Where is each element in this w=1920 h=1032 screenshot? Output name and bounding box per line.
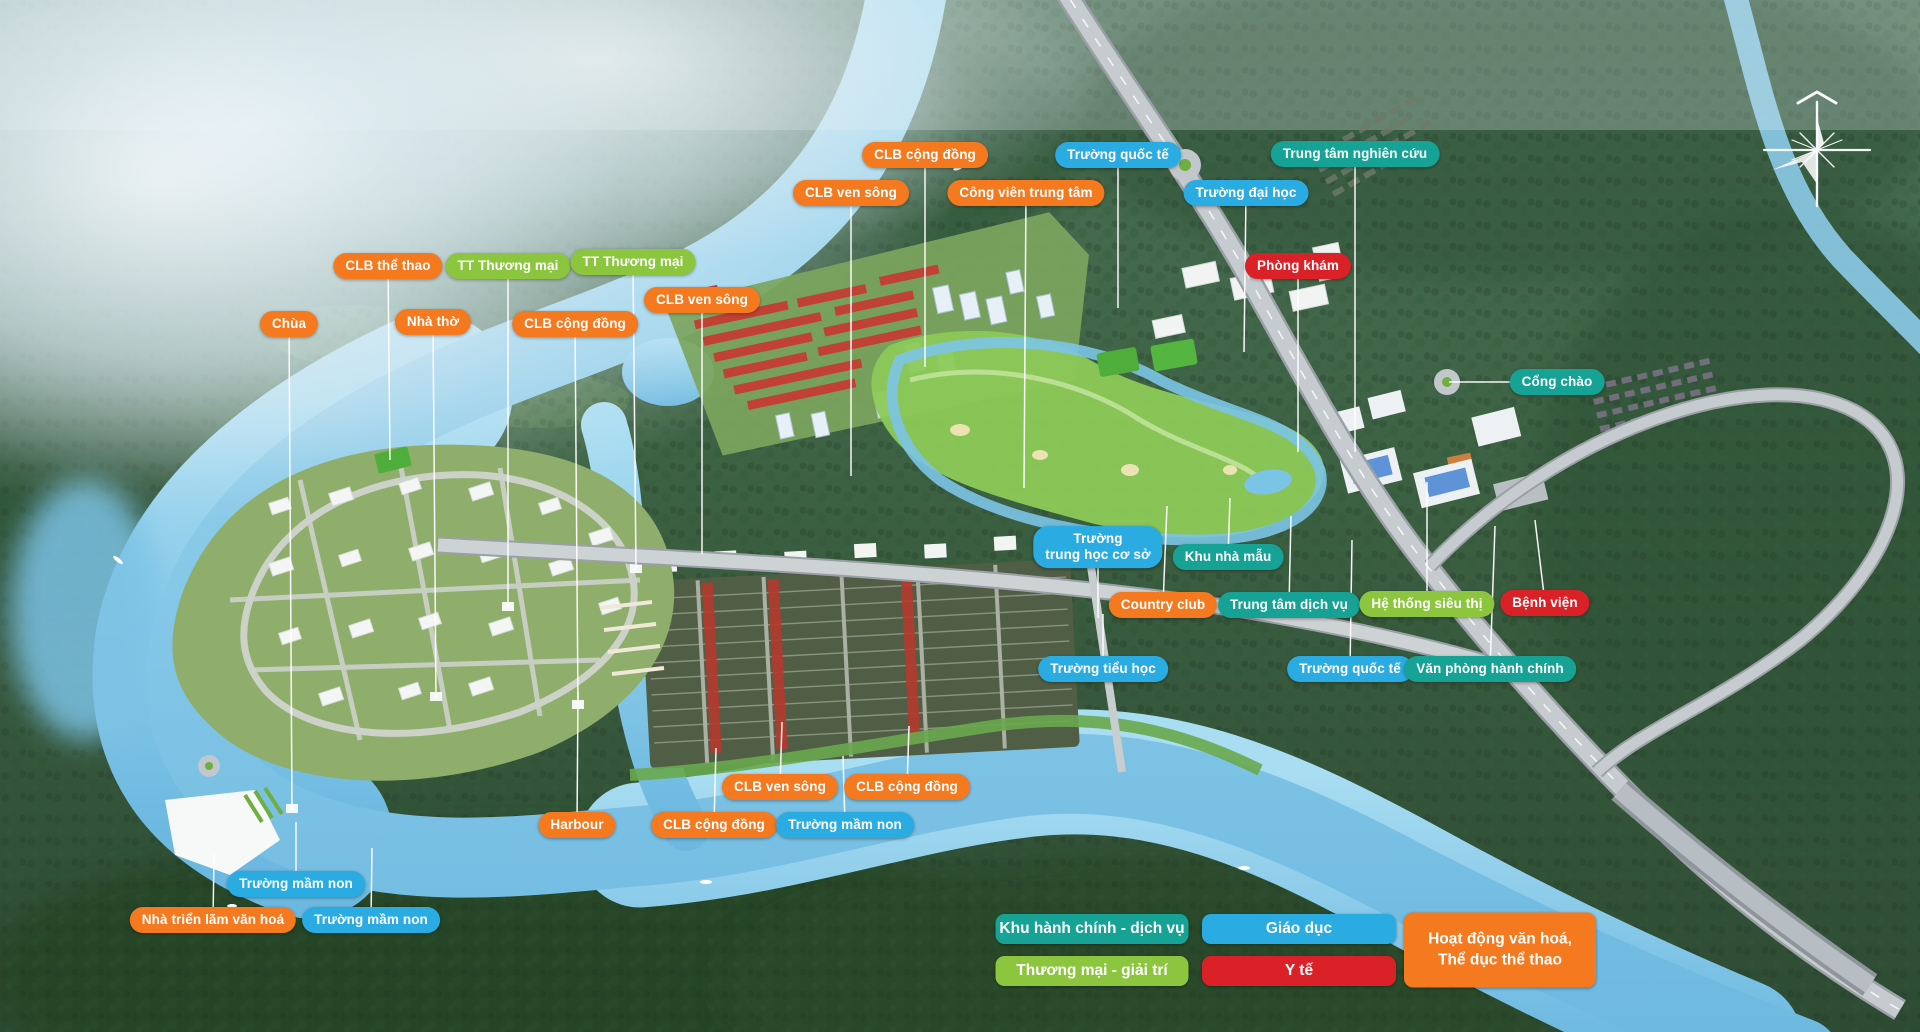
masterplan-view: CLB cộng đồngTrường quốc tếTrung tâm ngh… xyxy=(0,0,1920,1032)
masterplan-map-art xyxy=(0,0,1920,1032)
compass-rose-icon xyxy=(1762,88,1872,213)
